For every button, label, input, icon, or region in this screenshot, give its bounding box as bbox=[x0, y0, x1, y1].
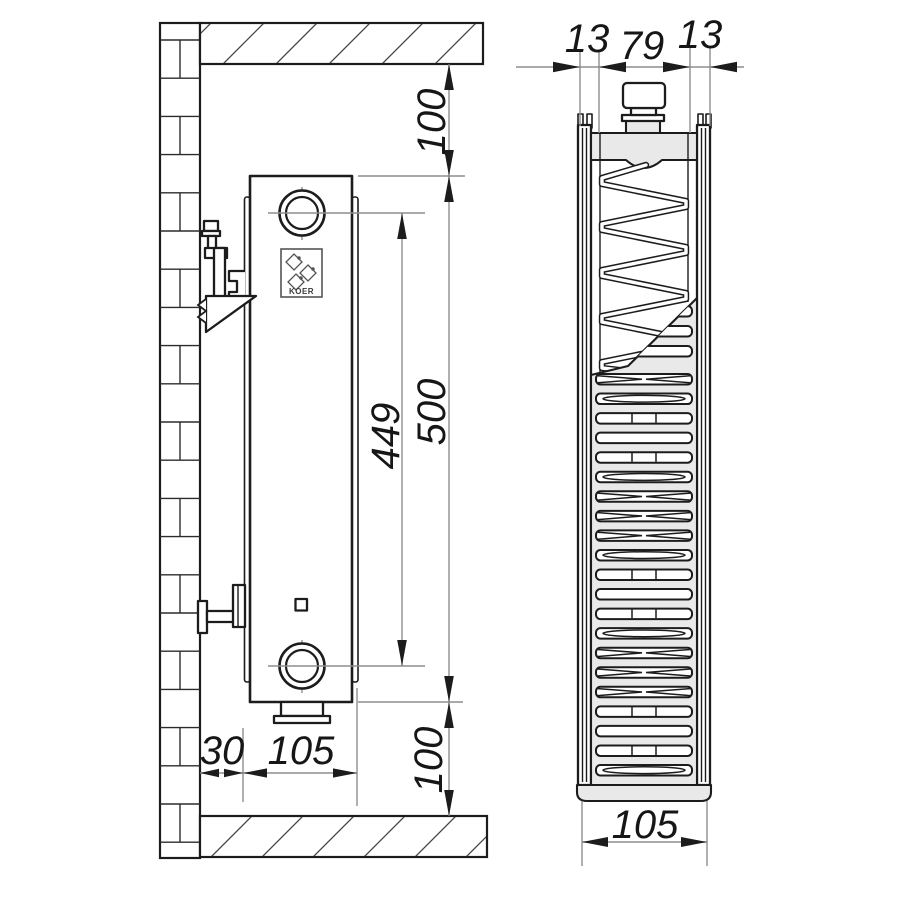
radiator-side-view: KOER bbox=[245, 176, 359, 723]
air-vent-valve bbox=[622, 83, 665, 133]
logo-text: KOER bbox=[289, 287, 314, 296]
dim-bottom-clearance: 100 bbox=[407, 727, 451, 794]
dim-front-panel: 13 bbox=[565, 17, 610, 61]
dim-core: 79 bbox=[620, 24, 665, 68]
dim-wall-gap: 30 bbox=[200, 729, 245, 773]
bottom-cap bbox=[577, 785, 711, 801]
valve-base bbox=[626, 121, 660, 133]
floor bbox=[160, 816, 507, 857]
panel-detail-square bbox=[296, 599, 308, 611]
dim-rear-panel: 13 bbox=[678, 13, 723, 57]
drain-plug bbox=[274, 702, 330, 723]
left-panel bbox=[578, 125, 591, 785]
right-panel bbox=[697, 125, 710, 785]
brand-logo: KOER bbox=[281, 249, 322, 297]
dim-height: 500 bbox=[410, 379, 454, 446]
valve-cap bbox=[623, 83, 665, 108]
dim-port-spacing: 449 bbox=[364, 403, 408, 470]
ceiling bbox=[170, 23, 529, 64]
dim-depth-side: 105 bbox=[268, 729, 335, 773]
bolt-head-icon bbox=[204, 221, 218, 231]
technical-drawing-canvas: KOER bbox=[0, 0, 900, 900]
brick-wall bbox=[160, 23, 200, 858]
dim-top-clearance: 100 bbox=[410, 89, 454, 156]
front-grille bbox=[591, 298, 697, 785]
radiator-installation-drawing: KOER bbox=[0, 0, 900, 900]
dim-total-depth: 105 bbox=[612, 803, 679, 847]
